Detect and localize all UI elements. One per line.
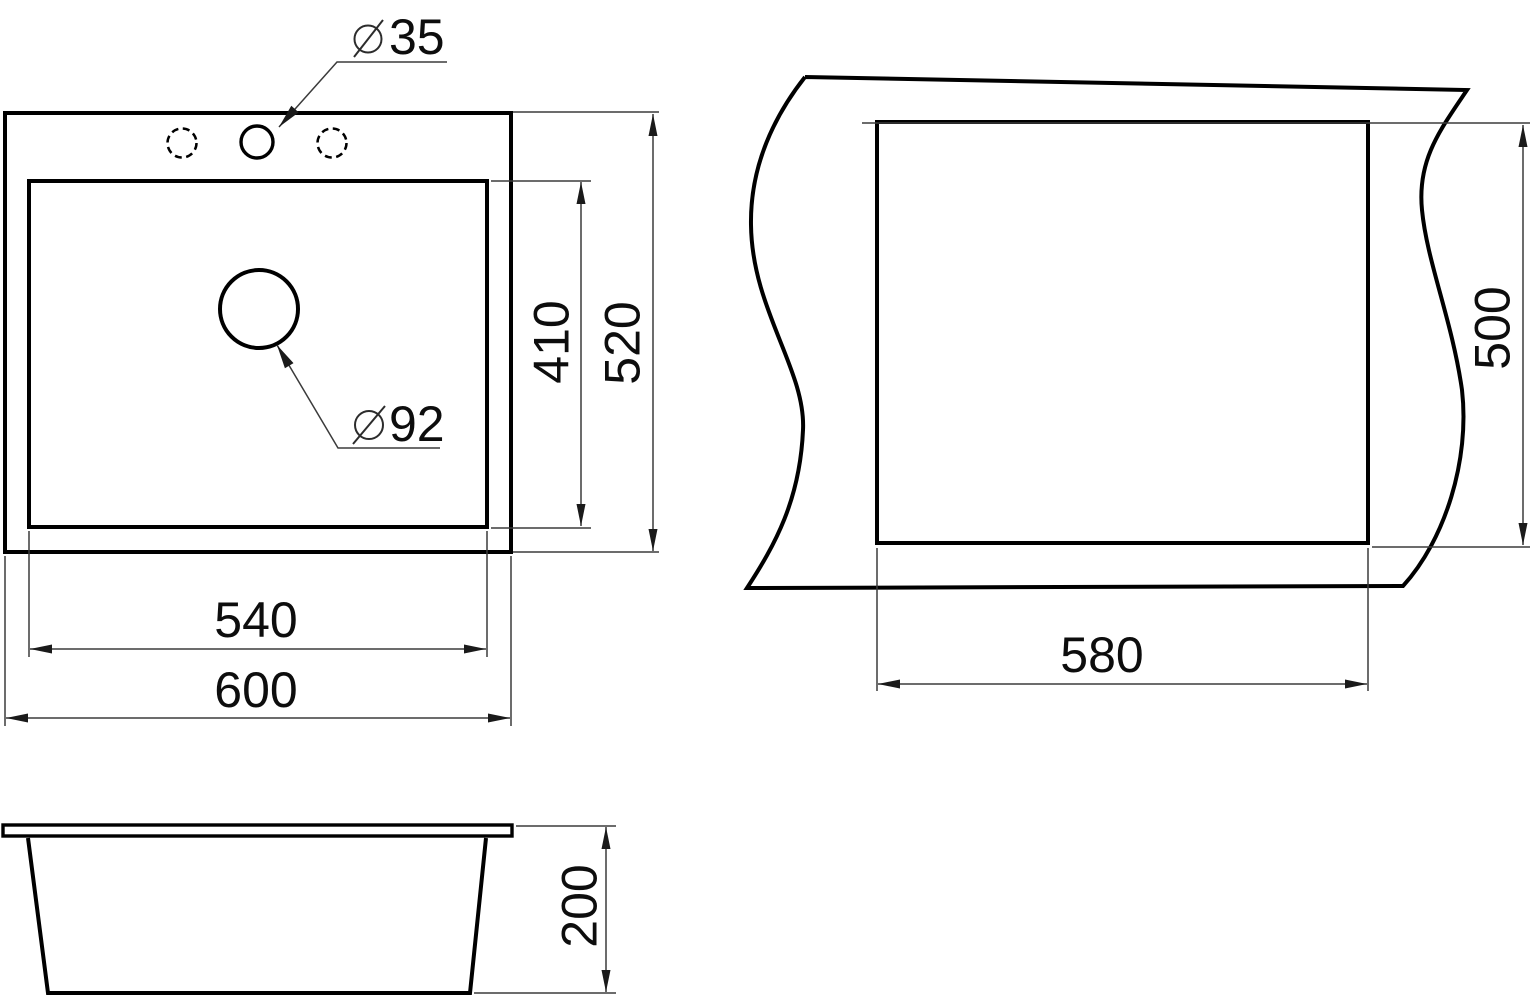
dim-label-faucet-diameter: 35 bbox=[389, 9, 445, 65]
side-view: 200 bbox=[3, 825, 616, 993]
arrowhead bbox=[577, 182, 586, 204]
arrowhead bbox=[878, 680, 900, 689]
leader-faucet-hole: 35 bbox=[279, 9, 447, 127]
top-view: 35 92 410 520 bbox=[5, 9, 659, 726]
arrowhead bbox=[1519, 125, 1528, 147]
sink-bowl-outline bbox=[29, 181, 487, 527]
arrowhead bbox=[649, 529, 658, 551]
arrowhead bbox=[6, 714, 28, 723]
cutout-rectangle bbox=[877, 122, 1368, 543]
dim-label-bowl-width: 540 bbox=[214, 592, 297, 648]
arrowhead bbox=[277, 345, 294, 368]
leader-drain-hole: 92 bbox=[277, 345, 445, 452]
arrowhead bbox=[649, 114, 658, 136]
sink-bowl-profile bbox=[28, 838, 486, 993]
faucet-hole-optional-left bbox=[168, 129, 197, 158]
dim-label-overall-width: 600 bbox=[214, 662, 297, 718]
arrowhead bbox=[1345, 680, 1367, 689]
countertop-outline bbox=[747, 77, 1467, 588]
arrowhead bbox=[577, 504, 586, 526]
dim-label-cutout-height: 500 bbox=[1465, 286, 1521, 369]
faucet-hole-optional-right bbox=[318, 129, 347, 158]
cutout-view: 500 580 bbox=[747, 77, 1530, 691]
arrowhead bbox=[602, 970, 611, 992]
dim-bowl-width: 540 bbox=[29, 531, 487, 657]
arrowhead bbox=[602, 827, 611, 849]
dim-cutout-width: 580 bbox=[877, 548, 1368, 691]
sink-dimension-drawing: 35 92 410 520 bbox=[0, 0, 1533, 1000]
drain-hole-circle bbox=[220, 270, 298, 348]
dim-label-cutout-width: 580 bbox=[1060, 627, 1143, 683]
arrowhead bbox=[1519, 523, 1528, 545]
faucet-hole-circle bbox=[241, 126, 273, 158]
dim-label-drain-diameter: 92 bbox=[389, 396, 445, 452]
diameter-symbol bbox=[354, 20, 383, 57]
arrowhead bbox=[488, 714, 510, 723]
arrowhead bbox=[30, 645, 52, 654]
sink-flange-profile bbox=[3, 825, 512, 836]
arrowhead bbox=[464, 645, 486, 654]
dim-bowl-height: 200 bbox=[474, 826, 616, 993]
dim-label-bowl-depth: 410 bbox=[524, 300, 580, 383]
sink-outer-outline bbox=[5, 113, 511, 552]
dim-cutout-height: 500 bbox=[862, 123, 1530, 547]
dim-bowl-depth: 410 bbox=[491, 181, 591, 528]
diameter-symbol bbox=[353, 406, 385, 444]
leader-line bbox=[279, 62, 447, 127]
dim-label-bowl-height: 200 bbox=[552, 864, 608, 947]
drawing-canvas: 35 92 410 520 bbox=[0, 0, 1533, 1000]
dim-label-overall-depth: 520 bbox=[595, 301, 651, 384]
